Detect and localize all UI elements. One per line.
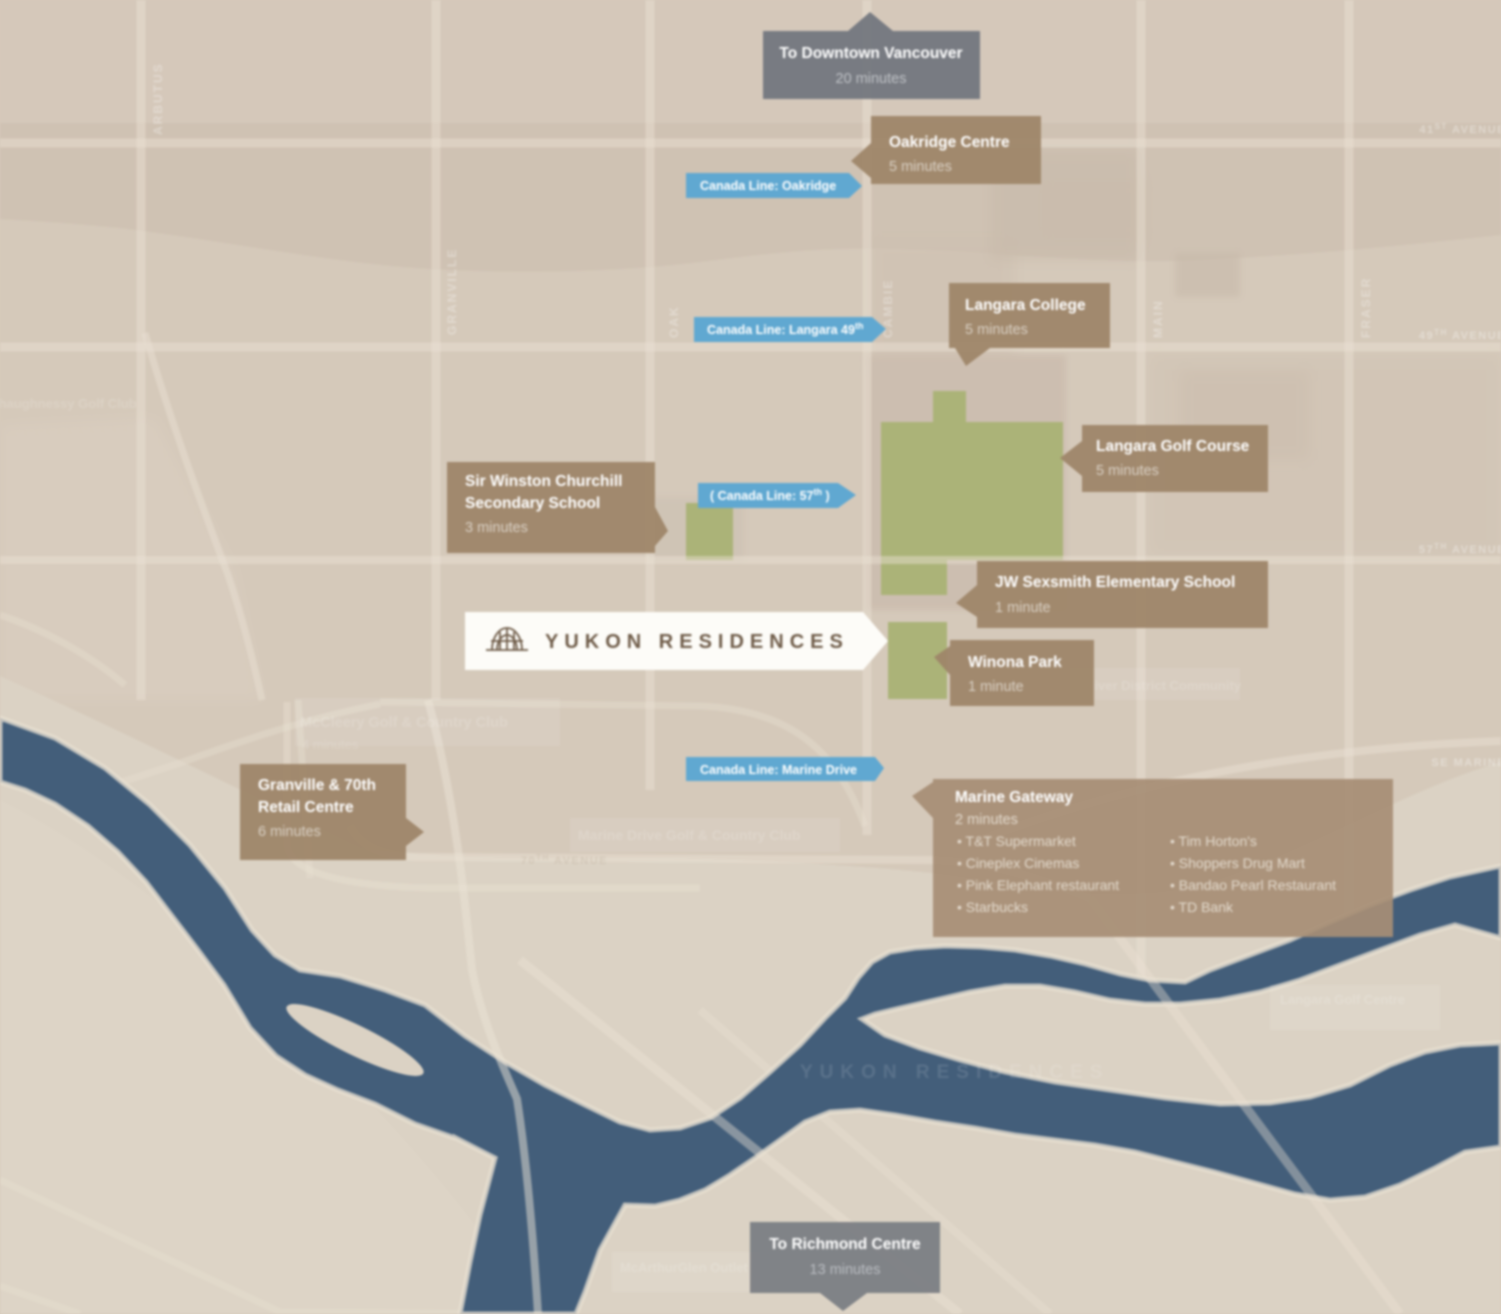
svg-text:• Shoppers Drug Mart: • Shoppers Drug Mart: [1170, 855, 1305, 871]
svg-text:5 minutes: 5 minutes: [889, 159, 952, 175]
svg-text:MAIN: MAIN: [1151, 299, 1165, 338]
svg-text:6 minutes: 6 minutes: [258, 824, 321, 840]
svg-text:Marine Gateway: Marine Gateway: [955, 789, 1073, 806]
svg-text:3 minutes: 3 minutes: [465, 520, 528, 536]
svg-text:FRASER: FRASER: [1359, 277, 1373, 338]
svg-text:Canada Line: Marine Drive: Canada Line: Marine Drive: [700, 763, 857, 777]
svg-text:YUKON RESIDENCES: YUKON RESIDENCES: [800, 1062, 1109, 1083]
svg-text:Secondary School: Secondary School: [465, 495, 600, 512]
svg-text:• TD Bank: • TD Bank: [1170, 899, 1234, 915]
svg-text:OAK: OAK: [667, 305, 681, 338]
svg-text:Oakridge Centre: Oakridge Centre: [889, 134, 1010, 151]
svg-text:Marine Drive Golf & Country Cl: Marine Drive Golf & Country Club: [578, 827, 800, 843]
svg-text:ARBUTUS: ARBUTUS: [151, 62, 165, 135]
svg-text:YUKON RESIDENCES: YUKON RESIDENCES: [545, 631, 849, 653]
svg-text:4 minutes: 4 minutes: [302, 737, 359, 752]
svg-text:Langara Golf Course: Langara Golf Course: [1096, 438, 1250, 455]
svg-text:To Downtown Vancouver: To Downtown Vancouver: [779, 45, 962, 62]
svg-text:57TH AVENUE: 57TH AVENUE: [1419, 542, 1501, 557]
svg-text:To Richmond Centre: To Richmond Centre: [769, 1236, 921, 1253]
svg-text:Granville & 70th: Granville & 70th: [258, 777, 376, 794]
svg-text:SE MARINE: SE MARINE: [1431, 757, 1501, 769]
svg-text:Langara Golf Centre: Langara Golf Centre: [1280, 992, 1405, 1007]
svg-text:Langara College: Langara College: [965, 297, 1086, 314]
svg-text:2 minutes: 2 minutes: [955, 812, 1018, 828]
svg-text:Retail Centre: Retail Centre: [258, 799, 354, 816]
svg-text:Canada Line: Oakridge: Canada Line: Oakridge: [700, 179, 836, 193]
svg-text:( Canada Line: 57th ): ( Canada Line: 57th ): [710, 487, 830, 503]
svg-text:• Cineplex Cinemas: • Cineplex Cinemas: [957, 855, 1079, 871]
svg-text:• Pink Elephant restaurant: • Pink Elephant restaurant: [957, 877, 1119, 893]
svg-text:• T&T Supermarket: • T&T Supermarket: [957, 833, 1076, 849]
svg-text:River District Community: River District Community: [1085, 678, 1242, 693]
svg-text:20 minutes: 20 minutes: [836, 71, 907, 87]
svg-text:Canada Line: Langara 49th: Canada Line: Langara 49th: [707, 321, 863, 337]
svg-text:Shaughnessy Golf Club: Shaughnessy Golf Club: [0, 396, 137, 411]
svg-text:JW Sexsmith Elementary School: JW Sexsmith Elementary School: [995, 574, 1235, 591]
svg-text:49TH AVENUE: 49TH AVENUE: [1419, 328, 1501, 343]
svg-text:1 minute: 1 minute: [995, 600, 1051, 616]
svg-text:5 minutes: 5 minutes: [965, 322, 1028, 338]
svg-text:1 minute: 1 minute: [968, 679, 1024, 695]
svg-text:Sir Winston Churchill: Sir Winston Churchill: [465, 473, 622, 490]
svg-text:70TH AVENUE: 70TH AVENUE: [521, 853, 608, 868]
svg-text:13 minutes: 13 minutes: [810, 1262, 881, 1278]
svg-text:• Tim Horton's: • Tim Horton's: [1170, 833, 1257, 849]
svg-text:• Starbucks: • Starbucks: [957, 899, 1028, 915]
svg-text:• Bandao Pearl Restaurant: • Bandao Pearl Restaurant: [1170, 877, 1336, 893]
svg-text:Winona Park: Winona Park: [968, 654, 1062, 671]
svg-text:McArthurGlen Outlet: McArthurGlen Outlet: [620, 1260, 749, 1275]
svg-text:GRANVILLE: GRANVILLE: [445, 248, 459, 335]
svg-text:McCleery Golf & Country Club: McCleery Golf & Country Club: [300, 715, 508, 731]
svg-text:5 minutes: 5 minutes: [1096, 463, 1159, 479]
svg-text:41ST AVENUE: 41ST AVENUE: [1419, 122, 1501, 137]
